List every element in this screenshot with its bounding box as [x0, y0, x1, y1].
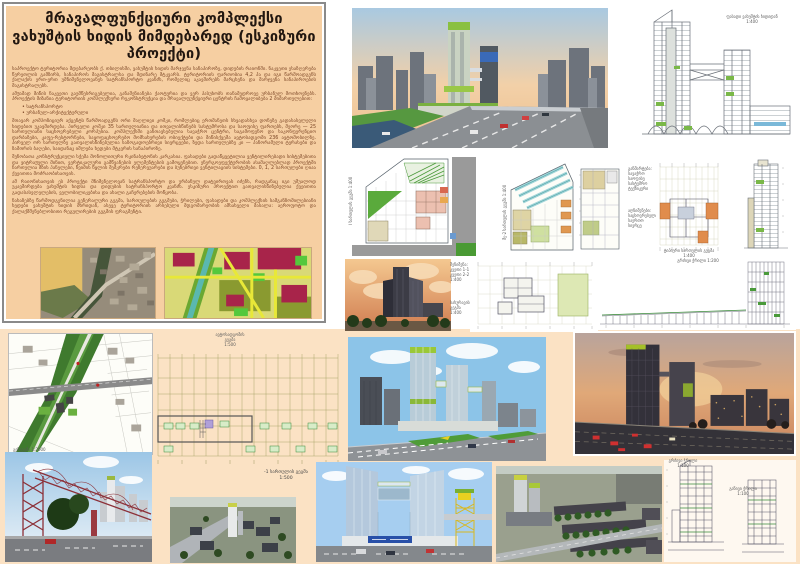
section-a-label: გრძივი ჭრილი 1:100 — [666, 458, 700, 468]
plan-legend: აღნიშვნები: საცხოვრებელი საერთო სივრცე — [628, 208, 654, 228]
poster-title: მრავალფუნქციური კომპლექსი ვახუშტის ხიდის… — [10, 11, 318, 64]
plan-legend: განმარტება: სავაჭრო საოფისე სასტუმრო ტექ… — [628, 166, 654, 191]
paragraph: ამ რაიონისათვის ეს პროექტი მნიშვნელოვან … — [12, 180, 316, 197]
second-floor-plan-label: მე-2 სართულის გეგმა 1:400 — [502, 185, 507, 240]
parking-plan-drawing: ავტოსადგომის გეგმა 1:500 — [150, 336, 346, 472]
render-bridge-view — [352, 8, 608, 148]
paragraph: შენობათა კონსტრუქციული სქემა მონოლითური … — [12, 155, 316, 177]
render-sunset-highway — [573, 331, 796, 456]
tower-elevation-small — [736, 158, 796, 258]
zoning-map-image — [164, 247, 312, 319]
section-b-label: განივი ჭრილი 1:100 — [726, 486, 760, 496]
first-floor-plan-label: I სართულის გეგმა 1:400 — [348, 177, 353, 225]
typical-floor-plan-drawing — [656, 159, 722, 258]
second-floor-plan-drawing — [507, 160, 577, 255]
first-floor-plan-drawing — [352, 157, 476, 256]
render-pedestrian-bridge — [5, 452, 152, 562]
paragraph: ნახაზებზე წარმოდგენილია გენერალური გეგმა… — [12, 199, 316, 216]
list-item: ურბანულ-არქიტექტურული — [22, 111, 316, 117]
basement-plan-label: -1 სართულის გეგმა 1:500 — [252, 470, 320, 481]
master-plan-drawing: გენგეგმა 1:2000 — [8, 333, 153, 455]
facade-elevation-drawing: ფასადი ვახუშტის ხიდიდან 1:400 — [628, 6, 796, 154]
typical-floor-plan-label: ტიპიური სართულის გეგმა 1:400 — [652, 248, 726, 258]
tower-section-drawings: გრძივი ჭრილი 1:100 განივი ჭრილი 1:100 — [664, 460, 796, 562]
context-maps — [4, 245, 324, 321]
render-aerial-trees — [496, 466, 662, 562]
render-tower-sunset — [345, 259, 451, 331]
render-day-view — [348, 337, 546, 461]
project-description: საპროექტო ტერიტორია მდებარეობს ქ. თბილის… — [12, 67, 316, 216]
render-street-view — [316, 462, 492, 562]
paragraph: ამჟამად მიწის ნაკვეთი გაუმწესრიგებელია, … — [12, 92, 316, 103]
info-panel: მრავალფუნქციური კომპლექსი ვახუშტის ხიდის… — [2, 2, 326, 323]
long-section-label: გრძივი ჭრილი 1:200 — [658, 258, 738, 263]
mezzanine-plan-drawing — [577, 163, 623, 255]
presentation-board: მრავალფუნქციური კომპლექსი ვახუშტის ხიდის… — [0, 0, 800, 564]
facade-caption: ფასადი ვახუშტის ხიდიდან 1:400 — [714, 14, 790, 24]
paragraph: მთავარ კომპოზიციურ აქცენტს წარმოადგენს ო… — [12, 119, 316, 152]
long-section-drawing: გრძივი ჭრილი 1:200 — [598, 258, 796, 330]
plan-notes: შენიშვნა: კვეთი 1-1 კვეთი 2-2 1:400 — [450, 262, 472, 282]
parking-plan-label: ავტოსადგომის გეგმა 1:500 — [206, 332, 254, 347]
satellite-map-image — [40, 247, 156, 319]
render-aerial-small — [170, 497, 296, 563]
plan-notes: სახურავის გეგმა 1:400 — [450, 300, 472, 315]
roof-plan-drawing — [470, 258, 598, 332]
paragraph: საპროექტო ტერიტორია მდებარეობს ქ. თბილის… — [12, 67, 316, 89]
direction-list: სატრანსპორტო ურბანულ-არქიტექტურული — [22, 105, 316, 116]
